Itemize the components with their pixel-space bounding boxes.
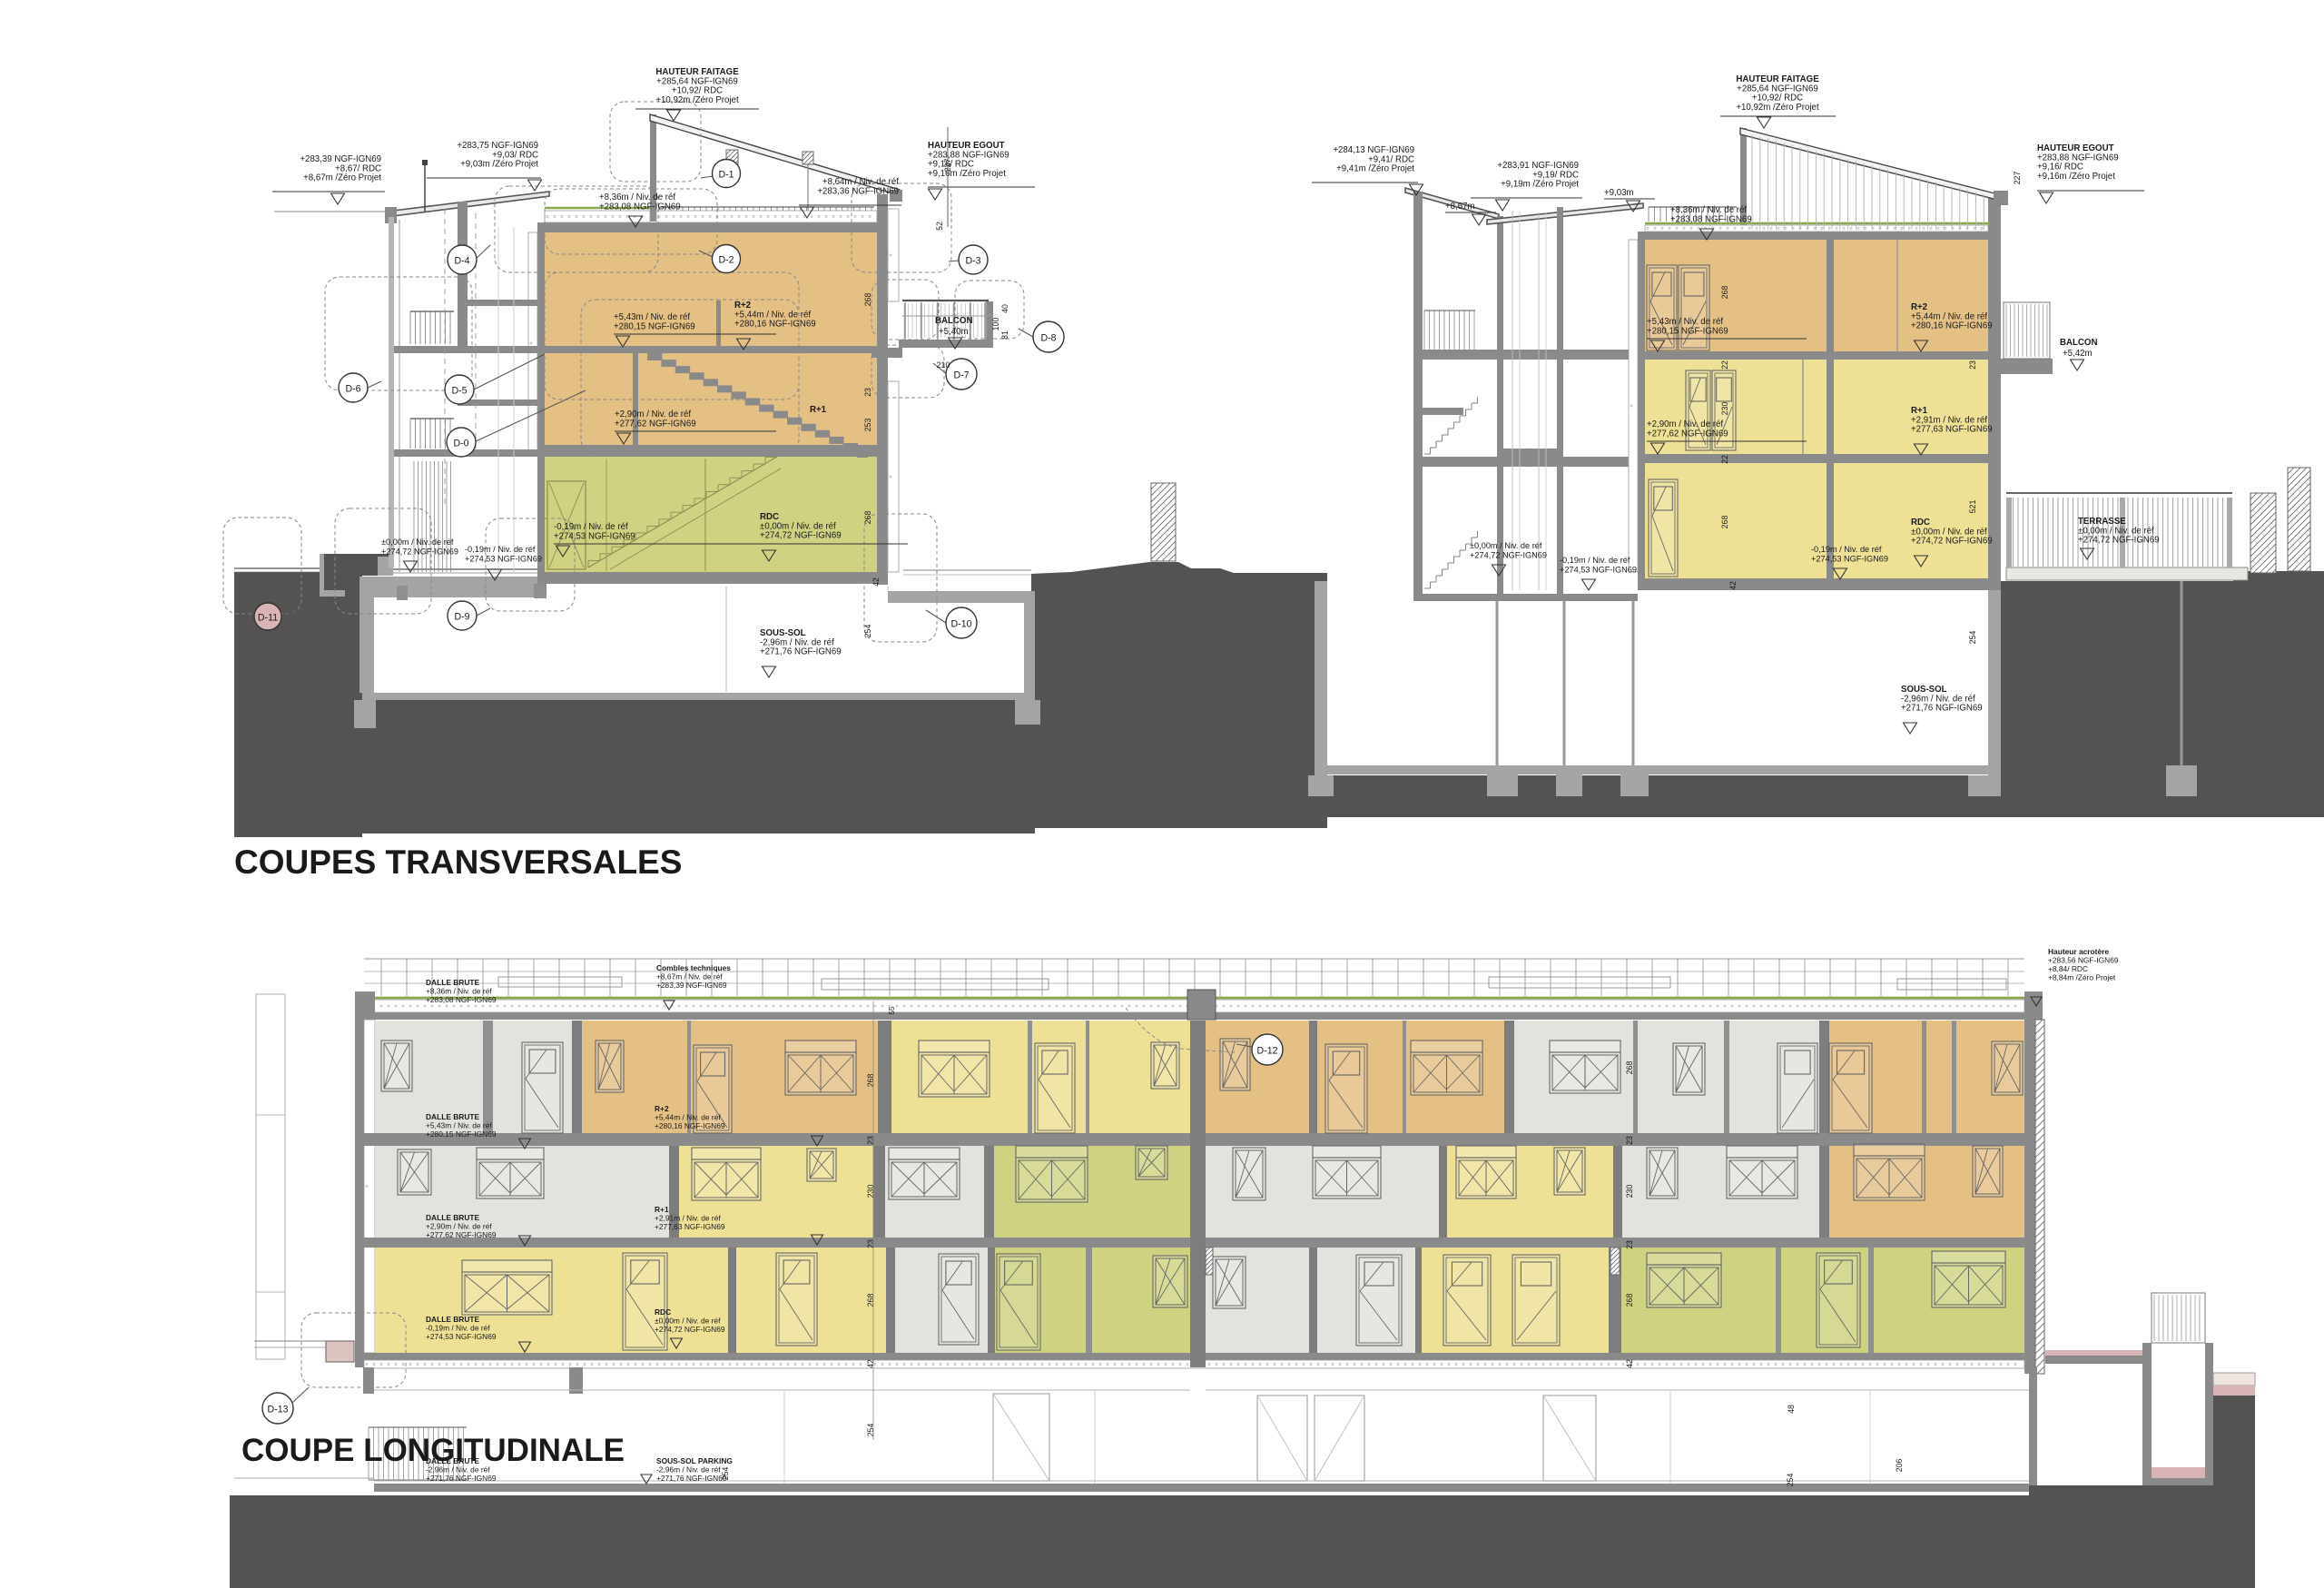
svg-text:254: 254 [1968, 631, 1977, 645]
svg-text:RDC: RDC [655, 1307, 671, 1317]
svg-text:+277,63 NGF-IGN69: +277,63 NGF-IGN69 [1911, 425, 1993, 435]
svg-text:+280,15 NGF-IGN69: +280,15 NGF-IGN69 [1647, 326, 1728, 336]
svg-text:+274,53 NGF-IGN69: +274,53 NGF-IGN69 [554, 531, 635, 541]
svg-text:+9,41m /Zéro Projet: +9,41m /Zéro Projet [1336, 164, 1414, 174]
svg-text:268: 268 [1625, 1061, 1634, 1075]
svg-text:COUPES TRANSVERSALES: COUPES TRANSVERSALES [234, 843, 682, 881]
svg-text:+274,53 NGF-IGN69: +274,53 NGF-IGN69 [465, 554, 542, 563]
svg-text:+274,53 NGF-IGN69: +274,53 NGF-IGN69 [426, 1332, 497, 1341]
svg-text:+271,76 NGF-IGN69: +271,76 NGF-IGN69 [1901, 704, 1983, 714]
svg-text:+9,03/ RDC: +9,03/ RDC [492, 150, 538, 160]
svg-text:+2,90m / Niv. de réf: +2,90m / Niv. de réf [1647, 419, 1723, 429]
svg-text:42: 42 [1728, 581, 1738, 590]
svg-text:+280,16 NGF-IGN69: +280,16 NGF-IGN69 [734, 320, 816, 330]
svg-text:D-0: D-0 [453, 439, 468, 449]
svg-text:+5,43m / Niv. de réf: +5,43m / Niv. de réf [614, 312, 690, 322]
svg-text:55: 55 [887, 1006, 896, 1015]
svg-text:Combles techniques: Combles techniques [656, 963, 731, 972]
svg-text:SOUS-SOL: SOUS-SOL [1901, 685, 1947, 695]
svg-text:+9,19/ RDC: +9,19/ RDC [1532, 170, 1579, 180]
svg-text:+2,90m / Niv. de réf: +2,90m / Niv. de réf [615, 409, 691, 419]
svg-text:R+2: R+2 [1911, 302, 1927, 312]
svg-text:210: 210 [937, 360, 950, 370]
svg-text:268: 268 [866, 1074, 875, 1088]
svg-text:D-9: D-9 [454, 612, 469, 623]
svg-text:+277,62 NGF-IGN69: +277,62 NGF-IGN69 [426, 1230, 497, 1239]
svg-text:D-3: D-3 [965, 256, 980, 267]
svg-text:268: 268 [866, 1294, 875, 1307]
svg-text:230: 230 [1720, 402, 1729, 416]
svg-text:+283,08 NGF-IGN69: +283,08 NGF-IGN69 [1670, 214, 1752, 224]
svg-text:-0,19m / Niv. de réf: -0,19m / Niv. de réf [1560, 556, 1630, 565]
svg-text:COUPE LONGITUDINALE: COUPE LONGITUDINALE [241, 1433, 625, 1468]
svg-text:22: 22 [1720, 360, 1729, 370]
svg-text:+5,40m: +5,40m [939, 327, 969, 337]
svg-text:+274,72 NGF-IGN69: +274,72 NGF-IGN69 [2078, 536, 2160, 546]
svg-text:+8,67/ RDC: +8,67/ RDC [335, 163, 381, 173]
svg-text:R+1: R+1 [1911, 406, 1928, 416]
svg-text:D-6: D-6 [345, 384, 360, 395]
svg-text:100: 100 [991, 318, 1000, 331]
svg-text:D-8: D-8 [1040, 333, 1056, 344]
svg-text:+285,64 NGF-IGN69: +285,64 NGF-IGN69 [656, 76, 738, 86]
svg-text:SOUS-SOL PARKING: SOUS-SOL PARKING [656, 1456, 733, 1465]
svg-text:-0,19m / Niv. de réf: -0,19m / Niv. de réf [1811, 545, 1882, 554]
svg-text:230: 230 [1625, 1185, 1634, 1198]
svg-text:+283,08 NGF-IGN69: +283,08 NGF-IGN69 [599, 202, 681, 212]
svg-text:BALCON: BALCON [935, 316, 972, 326]
svg-text:R+2: R+2 [655, 1104, 669, 1113]
svg-text:+5,42m: +5,42m [2063, 349, 2093, 359]
svg-text:D-7: D-7 [953, 370, 969, 381]
svg-text:RDC: RDC [1911, 518, 1930, 528]
svg-text:268: 268 [1720, 516, 1729, 529]
svg-text:+274,72 NGF-IGN69: +274,72 NGF-IGN69 [1470, 550, 1547, 559]
svg-text:+280,15 NGF-IGN69: +280,15 NGF-IGN69 [614, 321, 695, 331]
svg-text:-0,19m / Niv. de réf: -0,19m / Niv. de réf [465, 545, 536, 554]
svg-text:±0,00m / Niv. de réf: ±0,00m / Niv. de réf [381, 538, 454, 547]
svg-text:253: 253 [863, 419, 872, 432]
svg-text:268: 268 [863, 511, 872, 525]
svg-text:SOUS-SOL: SOUS-SOL [760, 628, 806, 638]
svg-text:DALLE BRUTE: DALLE BRUTE [426, 1315, 480, 1324]
svg-text:+10,92m /Zéro Projet: +10,92m /Zéro Projet [1736, 103, 1819, 113]
svg-text:Hauteur acrotère: Hauteur acrotère [2048, 947, 2109, 956]
svg-text:+280,16 NGF-IGN69: +280,16 NGF-IGN69 [1911, 321, 1993, 331]
svg-text:+271,76 NGF-IGN69: +271,76 NGF-IGN69 [760, 647, 842, 657]
svg-text:R+2: R+2 [734, 301, 751, 311]
svg-text:D-5: D-5 [451, 386, 467, 397]
svg-text:+9,16/ RDC: +9,16/ RDC [2037, 163, 2083, 173]
svg-text:±0,00m / Niv. de réf: ±0,00m / Niv. de réf [1470, 541, 1542, 550]
svg-text:254: 254 [863, 625, 872, 638]
svg-text:+285,64 NGF-IGN69: +285,64 NGF-IGN69 [1737, 84, 1818, 94]
svg-text:DALLE BRUTE: DALLE BRUTE [426, 1112, 480, 1121]
svg-text:52: 52 [935, 222, 944, 231]
svg-text:+9,03m: +9,03m [1604, 188, 1634, 198]
svg-text:+9,19m /Zéro Projet: +9,19m /Zéro Projet [1501, 180, 1579, 190]
svg-text:23: 23 [866, 1239, 875, 1248]
svg-text:+274,53 NGF-IGN69: +274,53 NGF-IGN69 [1560, 565, 1637, 574]
svg-text:+283,88 NGF-IGN69: +283,88 NGF-IGN69 [928, 150, 1009, 160]
svg-text:23: 23 [866, 1136, 875, 1145]
svg-text:227: 227 [2013, 172, 2022, 185]
svg-text:D-12: D-12 [1257, 1046, 1278, 1057]
svg-text:D-13: D-13 [268, 1405, 289, 1415]
svg-text:+283,36 NGF-IGN69: +283,36 NGF-IGN69 [817, 186, 899, 196]
svg-text:268: 268 [1720, 286, 1729, 300]
svg-text:+277,62 NGF-IGN69: +277,62 NGF-IGN69 [1647, 429, 1728, 439]
svg-text:+271,76 NGF-IGN69: +271,76 NGF-IGN69 [426, 1474, 497, 1483]
svg-text:521: 521 [1968, 500, 1977, 514]
svg-text:DALLE BRUTE: DALLE BRUTE [426, 978, 480, 987]
svg-text:206: 206 [1895, 1459, 1904, 1473]
svg-text:R+1: R+1 [810, 405, 827, 415]
svg-text:81: 81 [1000, 330, 1009, 340]
svg-text:+280,15 NGF-IGN69: +280,15 NGF-IGN69 [426, 1129, 497, 1139]
svg-text:268: 268 [863, 293, 872, 307]
svg-text:23: 23 [863, 388, 872, 397]
svg-text:D-11: D-11 [258, 613, 278, 624]
svg-text:268: 268 [1625, 1294, 1634, 1307]
svg-text:40: 40 [1000, 304, 1009, 313]
svg-text:R+1: R+1 [655, 1205, 669, 1214]
svg-text:+274,53 NGF-IGN69: +274,53 NGF-IGN69 [1811, 554, 1888, 563]
svg-text:BALCON: BALCON [2060, 338, 2097, 348]
svg-text:+9,41/ RDC: +9,41/ RDC [1368, 154, 1414, 164]
svg-text:+283,08 NGF-IGN69: +283,08 NGF-IGN69 [426, 995, 497, 1004]
svg-text:+277,62 NGF-IGN69: +277,62 NGF-IGN69 [615, 419, 696, 429]
svg-text:D-4: D-4 [454, 256, 469, 267]
svg-text:+280,16 NGF-IGN69: +280,16 NGF-IGN69 [655, 1121, 725, 1130]
svg-text:254: 254 [866, 1424, 875, 1437]
svg-text:42: 42 [866, 1359, 875, 1368]
svg-text:48: 48 [1787, 1405, 1796, 1414]
svg-text:+8,84m /Zéro Projet: +8,84m /Zéro Projet [2048, 972, 2116, 981]
svg-text:+274,72 NGF-IGN69: +274,72 NGF-IGN69 [1911, 537, 1993, 547]
svg-text:RDC: RDC [760, 512, 779, 522]
svg-text:230: 230 [866, 1185, 875, 1198]
svg-text:DALLE BRUTE: DALLE BRUTE [426, 1213, 480, 1222]
svg-text:+274,72 NGF-IGN69: +274,72 NGF-IGN69 [655, 1325, 725, 1334]
svg-text:+283,88 NGF-IGN69: +283,88 NGF-IGN69 [2037, 153, 2119, 163]
svg-text:+10,92m /Zéro Projet: +10,92m /Zéro Projet [655, 95, 739, 105]
svg-text:+5,43m / Niv. de réf: +5,43m / Niv. de réf [1647, 317, 1723, 327]
svg-text:23: 23 [1625, 1240, 1634, 1249]
svg-text:+274,72 NGF-IGN69: +274,72 NGF-IGN69 [381, 547, 458, 556]
svg-text:22: 22 [1720, 455, 1729, 464]
svg-text:+283,39 NGF-IGN69: +283,39 NGF-IGN69 [656, 981, 727, 990]
svg-text:-0,19m / Niv. de réf: -0,19m / Niv. de réf [554, 522, 628, 532]
svg-text:42: 42 [1625, 1359, 1634, 1368]
svg-text:23: 23 [1968, 360, 1977, 370]
svg-text:+9,03m /Zéro Projet: +9,03m /Zéro Projet [460, 160, 538, 170]
svg-text:254: 254 [1786, 1474, 1795, 1487]
svg-text:+9,16m /Zéro Projet: +9,16m /Zéro Projet [928, 169, 1006, 179]
svg-text:D-10: D-10 [951, 619, 972, 630]
svg-text:+8,67m: +8,67m [1445, 202, 1475, 212]
svg-text:254: 254 [721, 1467, 730, 1481]
svg-text:+9,16m /Zéro Projet: +9,16m /Zéro Projet [2037, 172, 2115, 182]
svg-text:+277,63 NGF-IGN69: +277,63 NGF-IGN69 [655, 1222, 725, 1231]
svg-text:+274,72 NGF-IGN69: +274,72 NGF-IGN69 [760, 531, 842, 541]
svg-text:42: 42 [871, 577, 881, 587]
svg-text:+8,67m /Zéro Projet: +8,67m /Zéro Projet [303, 173, 381, 183]
svg-text:D-1: D-1 [718, 170, 734, 181]
svg-text:TERRASSE: TERRASSE [2078, 517, 2126, 527]
svg-text:D-2: D-2 [718, 255, 734, 266]
svg-text:23: 23 [1625, 1136, 1634, 1145]
svg-text:+271,76 NGF-IGN69: +271,76 NGF-IGN69 [656, 1474, 727, 1483]
